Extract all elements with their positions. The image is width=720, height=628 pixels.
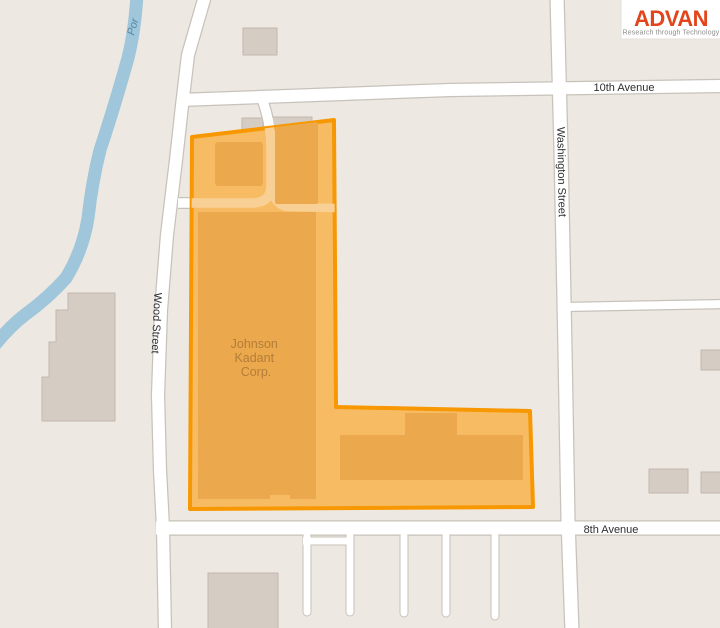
parcel-label-line: Corp. — [241, 365, 272, 379]
street-label-10th-avenue: 10th Avenue — [594, 82, 655, 94]
building — [701, 472, 720, 493]
road-alley — [564, 304, 720, 307]
building — [208, 573, 278, 628]
logo-title: ADVAN — [634, 6, 708, 31]
building — [243, 28, 277, 55]
advan-logo: ADVAN Research through Technology — [621, 0, 720, 39]
parcel-building — [275, 122, 318, 204]
building — [649, 469, 688, 493]
parcel-label-line: Johnson — [231, 337, 278, 351]
logo-tagline: Research through Technology — [623, 30, 720, 37]
map-stage: Por — [0, 0, 720, 628]
building — [701, 350, 720, 370]
street-label-8th-avenue: 8th Avenue — [584, 524, 639, 536]
parcel-building — [215, 142, 263, 186]
parcel-label-line: Kadant — [234, 351, 274, 365]
map-canvas: Por — [0, 0, 720, 628]
street-label-washington-street: Washington Street — [554, 127, 568, 217]
